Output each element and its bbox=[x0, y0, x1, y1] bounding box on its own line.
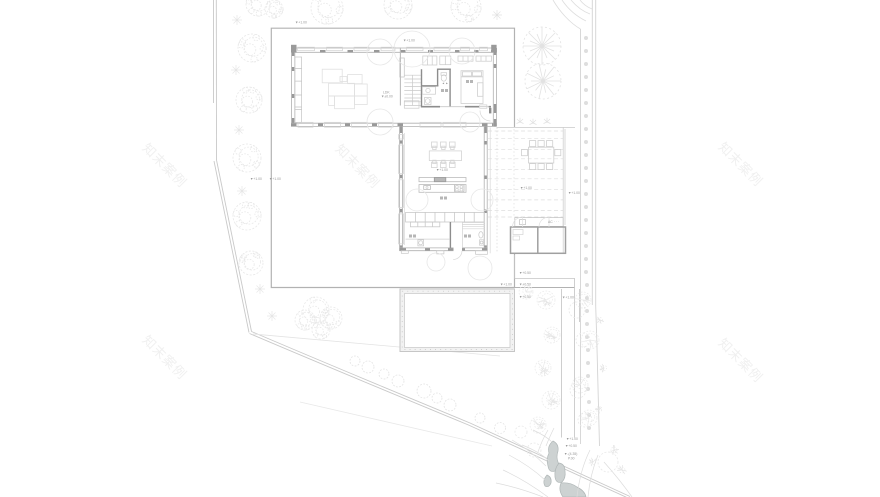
svg-text:▼+1.00: ▼+1.00 bbox=[520, 186, 532, 190]
svg-text:▼-(4.35): ▼-(4.35) bbox=[564, 452, 577, 456]
svg-text:▼+0.50: ▼+0.50 bbox=[565, 444, 577, 448]
svg-text:P.00: P.00 bbox=[568, 457, 575, 461]
svg-text:AC · · ·: AC · · · bbox=[548, 220, 559, 224]
svg-text:▼+1.00: ▼+1.00 bbox=[295, 21, 307, 25]
svg-text:▼+1.00: ▼+1.00 bbox=[500, 283, 512, 287]
svg-text:▼+0.50: ▼+0.50 bbox=[519, 295, 531, 299]
svg-text:▼+1.00: ▼+1.00 bbox=[403, 39, 415, 43]
svg-text:▼+1.00: ▼+1.00 bbox=[568, 191, 580, 195]
svg-text:▼+1.00: ▼+1.00 bbox=[250, 177, 262, 181]
svg-text:▼+1.00: ▼+1.00 bbox=[566, 437, 578, 441]
svg-text:▼+1.00: ▼+1.00 bbox=[436, 168, 448, 172]
svg-text:▼+0.50: ▼+0.50 bbox=[519, 283, 531, 287]
svg-text:▼+1.00: ▼+1.00 bbox=[562, 296, 574, 300]
svg-text:▼+0.50: ▼+0.50 bbox=[519, 271, 531, 275]
svg-text:▼+1.00: ▼+1.00 bbox=[269, 177, 281, 181]
svg-text:▼±0.00: ▼±0.00 bbox=[381, 95, 393, 99]
